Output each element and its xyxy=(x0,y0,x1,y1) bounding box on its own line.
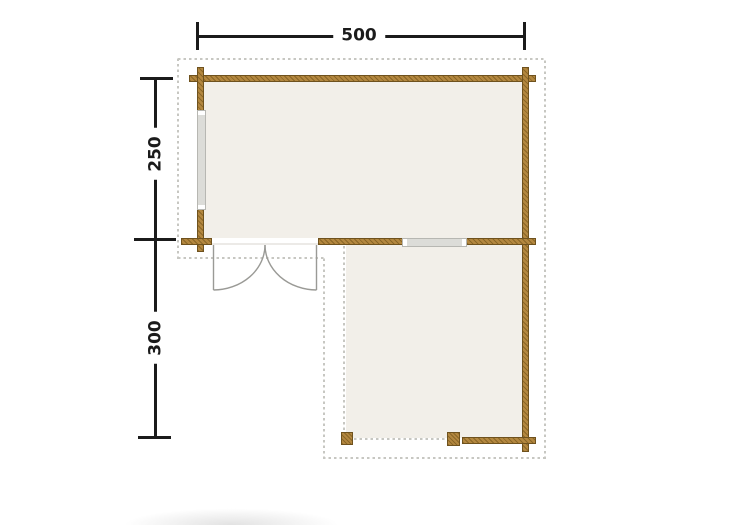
dimension-upper-depth-label: 250 xyxy=(146,128,167,180)
dimension-width-tick-left xyxy=(196,22,199,50)
main-room-floor xyxy=(204,82,522,238)
dimension-lower-depth-label: 300 xyxy=(146,312,167,364)
deck-edge-front xyxy=(343,438,449,440)
roof-outline-mid xyxy=(178,257,325,259)
dimension-width-tick-right xyxy=(523,22,526,50)
dimension-depth-tick-mid xyxy=(134,238,176,241)
floor-plan: 500 250 300 xyxy=(0,0,750,525)
ground-shadow xyxy=(118,502,388,525)
dimension-width-label: 500 xyxy=(333,26,385,47)
dimension-depth-tick-bottom xyxy=(138,436,171,439)
door-swing-arc-left xyxy=(214,245,266,290)
rear-wall xyxy=(189,75,536,82)
right-wall xyxy=(522,67,529,452)
dimension-depth-tick-top xyxy=(140,77,173,80)
terrace-post-right xyxy=(447,432,460,446)
terrace-floor xyxy=(346,245,522,438)
terrace-post-left xyxy=(341,432,353,445)
roof-outline-top xyxy=(178,58,546,60)
roof-outline-right xyxy=(544,58,546,459)
deck-edge-left xyxy=(343,245,345,441)
front-wall-left-segment xyxy=(181,238,212,245)
roof-outline-bottom xyxy=(323,457,546,459)
left-wall-window xyxy=(197,110,206,210)
terrace-front-wall-segment xyxy=(462,437,536,444)
roof-outline-terrace-left xyxy=(323,257,325,459)
door-swing-arc-right xyxy=(265,245,317,290)
partition-wall-window xyxy=(402,238,467,247)
roof-outline-left-upper xyxy=(177,58,179,259)
